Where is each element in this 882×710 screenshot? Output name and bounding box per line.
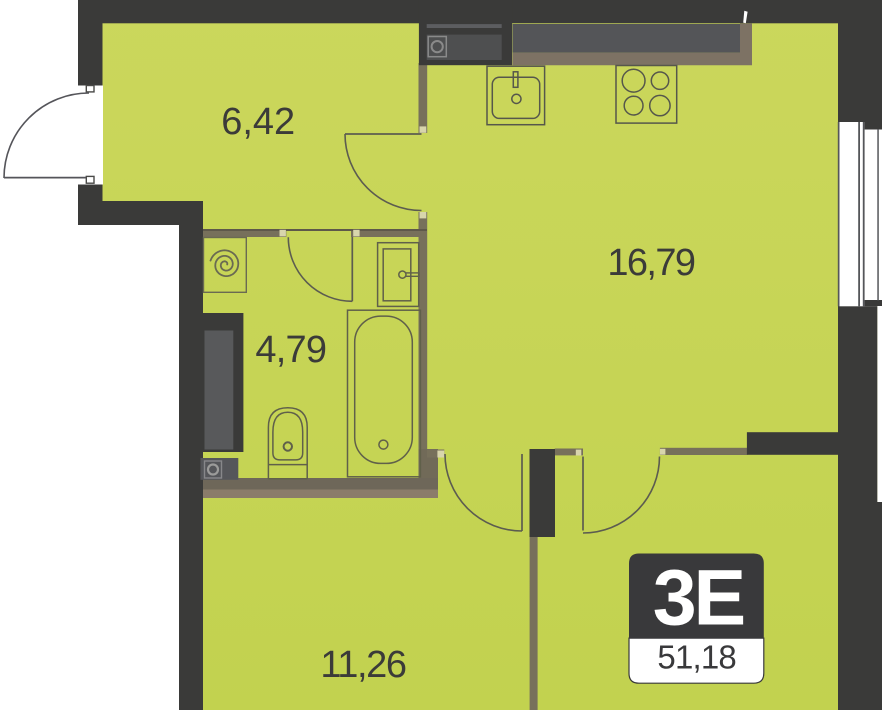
svg-text:4,79: 4,79 [255,329,326,371]
svg-text:16,79: 16,79 [607,242,695,284]
svg-text:3E: 3E [653,553,744,642]
svg-text:51,18: 51,18 [657,639,736,676]
svg-text:11,26: 11,26 [320,644,406,686]
svg-text:6,42: 6,42 [221,101,295,143]
